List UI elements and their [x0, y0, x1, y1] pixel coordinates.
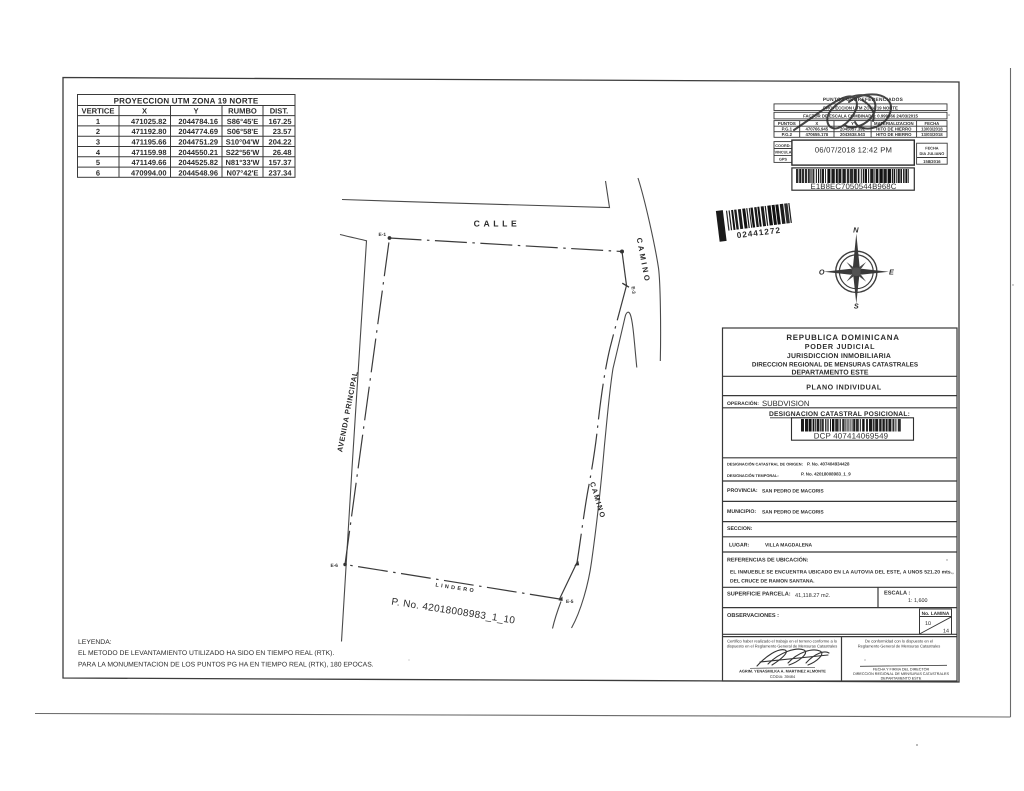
- svg-text:470655.178: 470655.178: [805, 132, 828, 137]
- svg-text:DESIGNACIÓN CATASTRAL DE ORIG: DESIGNACIÓN CATASTRAL DE ORIGEN:: [727, 462, 803, 467]
- svg-text:S06°58'E: S06°58'E: [227, 127, 258, 136]
- svg-text:VERTICE: VERTICE: [82, 107, 115, 116]
- svg-text:P. No. 407404934428: P. No. 407404934428: [807, 462, 850, 467]
- svg-text:FECHA: FECHA: [925, 146, 939, 151]
- svg-text:167.25: 167.25: [269, 117, 292, 126]
- svg-text:N07°42'E: N07°42'E: [227, 168, 259, 177]
- svg-text:RUMBO: RUMBO: [228, 107, 257, 116]
- svg-text:1: 1: [96, 117, 100, 126]
- svg-text:471159.98: 471159.98: [131, 148, 166, 157]
- svg-text:X: X: [142, 107, 147, 116]
- svg-text:N81°33'W: N81°33'W: [226, 158, 261, 167]
- svg-text:EL INMUEBLE SE ENCUENTRA UBICA: EL INMUEBLE SE ENCUENTRA UBICADO EN LA A…: [730, 570, 954, 576]
- svg-text:14: 14: [943, 629, 949, 635]
- svg-text:PUNTOS: PUNTOS: [778, 121, 796, 126]
- svg-text:E1B8EC7050544B968C: E1B8EC7050544B968C: [811, 182, 897, 191]
- svg-text:ESCALA :: ESCALA :: [884, 591, 910, 597]
- svg-text:CALLE: CALLE: [474, 219, 521, 229]
- svg-text:S22°56'W: S22°56'W: [226, 148, 260, 157]
- svg-text:471149.66: 471149.66: [131, 158, 166, 167]
- svg-text:AGRIM. YENASMILKA A. MARTINEZ: AGRIM. YENASMILKA A. MARTINEZ ALMONTE: [739, 668, 826, 673]
- svg-text:Y: Y: [851, 121, 854, 126]
- svg-text:E-6: E-6: [331, 563, 339, 569]
- svg-text:DCP 407414069549: DCP 407414069549: [814, 432, 889, 441]
- svg-text:VILLA MAGDALENA: VILLA MAGDALENA: [765, 543, 813, 549]
- svg-text:JURISDICCION INMOBILIARIA: JURISDICCION INMOBILIARIA: [787, 353, 891, 360]
- svg-text:DEPARTAMENTO ESTE: DEPARTAMENTO ESTE: [792, 369, 869, 376]
- svg-text:EL METODO DE LEVANTAMIENTO UTI: EL METODO DE LEVANTAMIENTO UTILIZADO HA …: [78, 650, 334, 657]
- svg-text:FACTOR DE ESCALA COMBINADO: 0: FACTOR DE ESCALA COMBINADO: 0.999866 24/…: [803, 114, 918, 119]
- svg-text:471195.66: 471195.66: [131, 138, 166, 147]
- svg-text:Y: Y: [193, 107, 198, 116]
- svg-text:S: S: [854, 302, 859, 311]
- svg-text:P.G.2: P.G.2: [782, 132, 793, 137]
- svg-text:26.48: 26.48: [273, 148, 292, 157]
- svg-text:471192.80: 471192.80: [131, 127, 166, 136]
- svg-text:SUBDVISION: SUBDVISION: [762, 399, 809, 408]
- svg-text:23.57: 23.57: [273, 127, 292, 136]
- svg-text:P.G.1: P.G.1: [782, 127, 793, 132]
- svg-text:P. No. 42018008983_1_10: P. No. 42018008983_1_10: [391, 597, 517, 627]
- svg-text:2044774.69: 2044774.69: [178, 127, 218, 136]
- svg-text:SUPERFICIE PARCELA:: SUPERFICIE PARCELA:: [727, 592, 791, 598]
- svg-text:FECHA: FECHA: [924, 121, 939, 126]
- svg-text:N: N: [853, 226, 859, 235]
- svg-text:2044548.96: 2044548.96: [178, 168, 218, 177]
- svg-text:158/2016: 158/2016: [923, 159, 941, 164]
- svg-text:LUGAR:: LUGAR:: [729, 543, 749, 549]
- svg-text:2044784.16: 2044784.16: [178, 117, 218, 126]
- svg-text:HITO DE HIERRO: HITO DE HIERRO: [876, 132, 912, 137]
- svg-text:COORD:: COORD:: [775, 144, 790, 148]
- svg-text:2: 2: [96, 127, 100, 136]
- svg-text:DIRECCION REGIONAL DE MENSURAS: DIRECCION REGIONAL DE MENSURAS CATASTRAL…: [752, 362, 918, 369]
- svg-text:Reglamento General de Mensuras: Reglamento General de Mensuras Catastral…: [858, 644, 941, 649]
- svg-text:DIA JULIANO: DIA JULIANO: [920, 151, 945, 156]
- svg-text:E-1: E-1: [379, 232, 387, 238]
- svg-text:OPERACIÓN:: OPERACIÓN:: [727, 400, 759, 407]
- svg-text:No. LAMINA: No. LAMINA: [922, 611, 950, 617]
- svg-text:dispuesto en el Reglamento Gen: dispuesto en el Reglamento General de Me…: [727, 644, 838, 649]
- svg-text:S10°04'W: S10°04'W: [226, 138, 260, 147]
- svg-text:CAMINO: CAMINO: [635, 237, 653, 284]
- svg-text:PARA LA MONUMENTACION DE LOS P: PARA LA MONUMENTACION DE LOS PUNTOS PG H…: [78, 661, 374, 668]
- svg-text:06/07/2018 12:42 PM: 06/07/2018 12:42 PM: [815, 146, 892, 155]
- svg-text:DEPARTAMENTO ESTE: DEPARTAMENTO ESTE: [881, 676, 922, 680]
- svg-text:237.34: 237.34: [269, 168, 293, 177]
- svg-text:2044751.29: 2044751.29: [178, 138, 218, 147]
- svg-text:X: X: [815, 121, 818, 126]
- svg-text:1: 1,600: 1: 1,600: [908, 598, 927, 604]
- svg-text:REPUBLICA DOMINICANA: REPUBLICA DOMINICANA: [786, 333, 899, 342]
- svg-text:E: E: [889, 268, 894, 277]
- svg-text:5: 5: [96, 158, 100, 167]
- svg-text:13/03/2018: 13/03/2018: [921, 127, 943, 132]
- svg-text:O: O: [819, 268, 825, 277]
- svg-text:6: 6: [96, 168, 100, 177]
- svg-text:PROVINCIA:: PROVINCIA:: [727, 488, 758, 494]
- svg-text:LEYENDA:: LEYENDA:: [78, 639, 112, 646]
- svg-text:4: 4: [96, 148, 101, 157]
- svg-text:470994.00: 470994.00: [131, 168, 166, 177]
- svg-text:204.22: 204.22: [269, 138, 292, 147]
- svg-text:PLANO INDIVIDUAL: PLANO INDIVIDUAL: [806, 384, 882, 392]
- svg-text:P. No. 42018008983_1_9: P. No. 42018008983_1_9: [801, 472, 851, 477]
- svg-text:PROYECCION UTM ZONA 19 NORTE: PROYECCION UTM ZONA 19 NORTE: [114, 96, 259, 105]
- svg-text:REFERENCIAS DE UBICACIÓN:: REFERENCIAS DE UBICACIÓN:: [727, 557, 809, 564]
- svg-text:CODIA: 39464: CODIA: 39464: [770, 674, 796, 679]
- svg-text:SAN PEDRO DE MACORIS: SAN PEDRO DE MACORIS: [762, 510, 824, 516]
- svg-text:471025.82: 471025.82: [131, 117, 166, 126]
- svg-text:157.37: 157.37: [269, 158, 292, 167]
- svg-text:470766.945: 470766.945: [805, 127, 828, 132]
- svg-text:DESIGNACIÓN TEMPORAL:: DESIGNACIÓN TEMPORAL:: [727, 473, 779, 478]
- svg-text:E-3: E-3: [630, 286, 637, 294]
- svg-text:S86°45'E: S86°45'E: [227, 117, 258, 126]
- svg-text:DEL CRUCE DE RAMON SANTANA.: DEL CRUCE DE RAMON SANTANA.: [730, 579, 815, 585]
- svg-text:CAMINO: CAMINO: [588, 481, 608, 520]
- svg-text:SECCION:: SECCION:: [727, 526, 753, 532]
- svg-text:41,118.27 m2.: 41,118.27 m2.: [795, 593, 831, 599]
- svg-text:2043638.543: 2043638.543: [840, 132, 866, 137]
- svg-text:PODER JUDICIAL: PODER JUDICIAL: [805, 342, 876, 351]
- svg-text:MUNICIPIO:: MUNICIPIO:: [727, 509, 756, 515]
- svg-text:DIST.: DIST.: [270, 107, 289, 116]
- svg-text:10: 10: [925, 621, 931, 627]
- svg-text:13/03/2018: 13/03/2018: [921, 132, 943, 137]
- svg-text:OBSERVACIONES :: OBSERVACIONES :: [727, 613, 779, 619]
- svg-text:HITO DE HIERRO: HITO DE HIERRO: [876, 127, 912, 132]
- svg-text:DESIGNACION CATASTRAL POSICION: DESIGNACION CATASTRAL POSICIONAL:: [769, 411, 910, 418]
- svg-text:3: 3: [96, 138, 100, 147]
- svg-text:FECHA Y FIRMA DEL DIRECTOR: FECHA Y FIRMA DEL DIRECTOR: [873, 668, 930, 672]
- svg-text:VINCULA: VINCULA: [775, 151, 792, 155]
- svg-text:2044525.82: 2044525.82: [178, 158, 218, 167]
- svg-text:2044550.21: 2044550.21: [178, 148, 218, 157]
- svg-text:SAN PEDRO DE MACORIS: SAN PEDRO DE MACORIS: [762, 489, 824, 495]
- svg-text:GPS: GPS: [779, 158, 787, 162]
- svg-text:E-5: E-5: [566, 599, 574, 605]
